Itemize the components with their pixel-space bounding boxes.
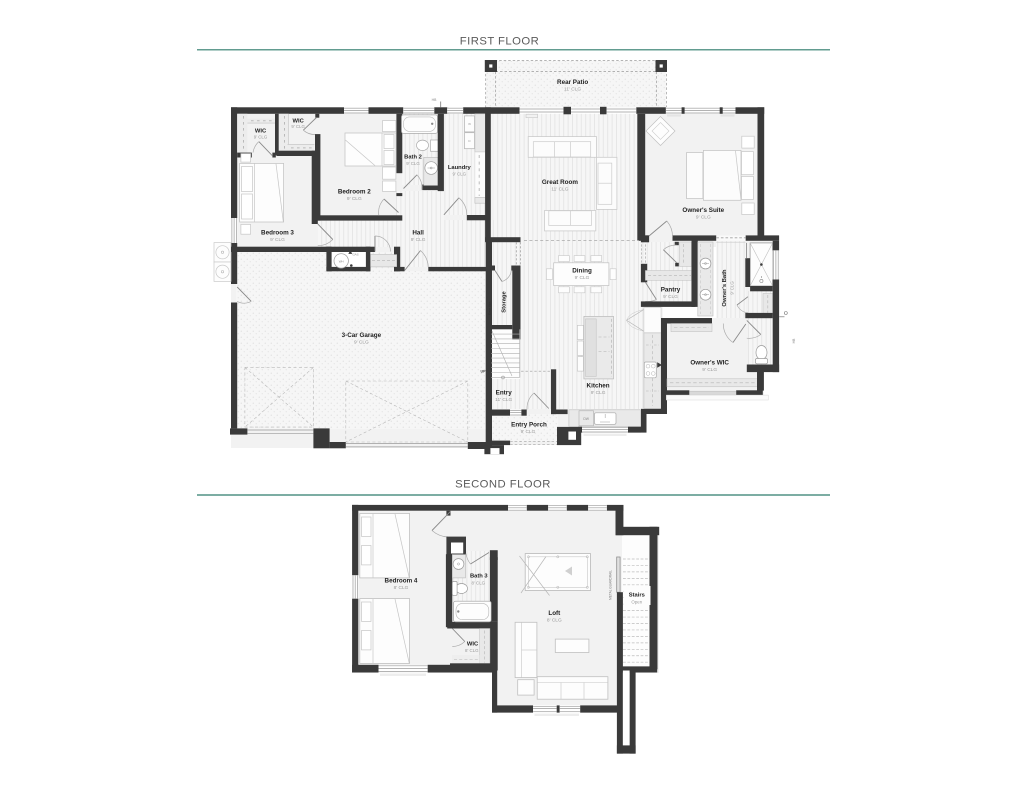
svg-text:Great Room: Great Room (542, 179, 578, 186)
svg-text:GAS: GAS (352, 253, 358, 257)
svg-text:Bedroom 2: Bedroom 2 (338, 189, 371, 196)
svg-text:9' CLG: 9' CLG (354, 340, 369, 346)
svg-text:Bath 3: Bath 3 (470, 574, 488, 580)
svg-text:Laundry: Laundry (448, 165, 472, 171)
svg-text:9' CLG: 9' CLG (663, 294, 678, 300)
svg-text:Entry: Entry (496, 390, 513, 397)
svg-text:9' CLG: 9' CLG (411, 237, 426, 243)
svg-text:Bedroom 4: Bedroom 4 (385, 578, 418, 585)
svg-text:9' CLG: 9' CLG (591, 390, 606, 396)
svg-text:9' CLG: 9' CLG (270, 237, 285, 243)
svg-text:11' CLG: 11' CLG (495, 397, 512, 403)
svg-text:Owner's WIC: Owner's WIC (690, 360, 729, 367)
svg-text:3-Car Garage: 3-Car Garage (342, 332, 382, 339)
svg-text:Pantry: Pantry (661, 287, 681, 294)
svg-text:FIRST FLOOR: FIRST FLOOR (460, 35, 539, 47)
svg-text:9' CLG: 9' CLG (453, 172, 467, 177)
svg-text:Stairs: Stairs (629, 593, 645, 599)
svg-text:9' CLG: 9' CLG (575, 275, 590, 281)
svg-text:METAL GUARDRAIL: METAL GUARDRAIL (609, 570, 613, 600)
svg-text:Storage: Storage (502, 290, 508, 312)
svg-text:Bedroom 3: Bedroom 3 (261, 230, 294, 237)
svg-text:Owner's Suite: Owner's Suite (682, 207, 724, 214)
svg-text:WH: WH (339, 259, 344, 263)
svg-text:9' CLG: 9' CLG (254, 135, 268, 140)
svg-text:8' CLG: 8' CLG (394, 585, 409, 591)
svg-text:HB: HB (792, 338, 796, 343)
svg-text:8' CLG: 8' CLG (465, 648, 479, 653)
svg-text:9' CLG: 9' CLG (291, 124, 305, 129)
svg-text:Kitchen: Kitchen (587, 383, 610, 390)
svg-text:W: W (468, 122, 471, 126)
svg-text:Gear Stor.: Gear Stor. (487, 301, 491, 315)
svg-text:11' CLG: 11' CLG (564, 87, 581, 93)
svg-text:Bath 2: Bath 2 (404, 155, 422, 161)
svg-text:9' CLG: 9' CLG (696, 215, 711, 221)
svg-text:9' CLG: 9' CLG (521, 429, 536, 435)
svg-text:Dining: Dining (572, 268, 592, 275)
svg-text:WIC: WIC (467, 642, 479, 648)
svg-text:UP: UP (481, 370, 487, 374)
svg-text:8' CLG: 8' CLG (547, 618, 562, 624)
svg-text:Owner's Bath: Owner's Bath (722, 269, 728, 307)
svg-text:Entry Porch: Entry Porch (511, 422, 547, 429)
svg-text:DW: DW (583, 417, 589, 421)
svg-text:Rear Patio: Rear Patio (557, 79, 588, 86)
svg-text:9' CLG: 9' CLG (730, 281, 735, 295)
svg-text:Hall: Hall (412, 230, 424, 237)
svg-text:9' CLG: 9' CLG (406, 161, 420, 166)
svg-text:Loft: Loft (548, 610, 561, 617)
svg-text:8' CLG: 8' CLG (472, 581, 486, 586)
svg-text:SECOND FLOOR: SECOND FLOOR (455, 479, 551, 491)
svg-text:9' CLG: 9' CLG (702, 367, 717, 373)
svg-text:11' CLG: 11' CLG (551, 187, 568, 193)
svg-text:9' CLG: 9' CLG (347, 196, 362, 202)
svg-text:Open: Open (631, 600, 642, 605)
svg-text:HB: HB (432, 98, 437, 102)
